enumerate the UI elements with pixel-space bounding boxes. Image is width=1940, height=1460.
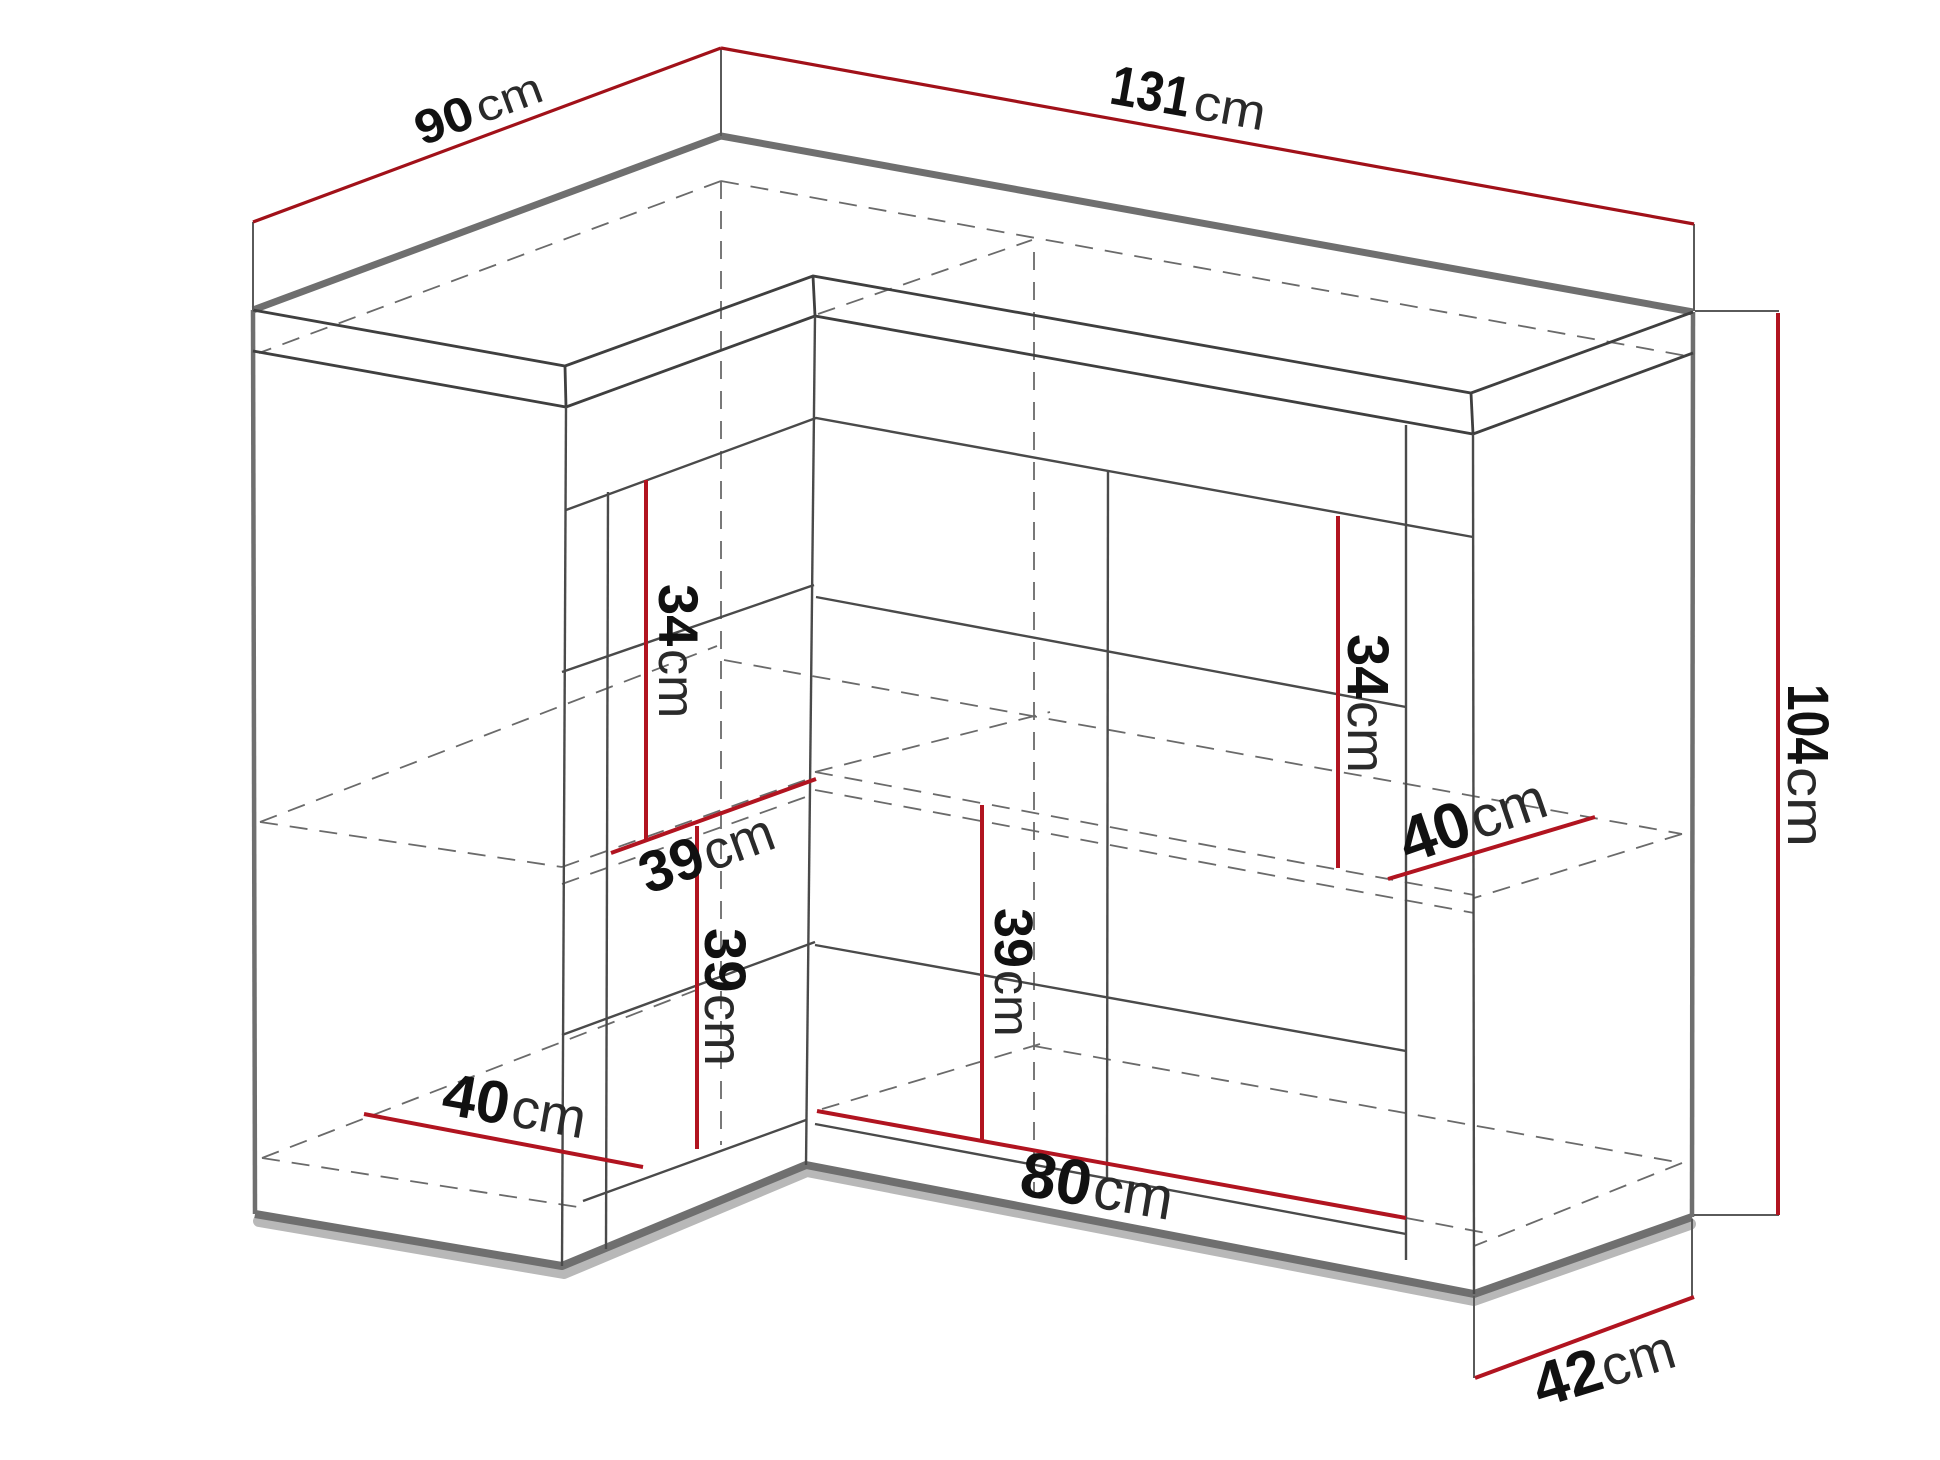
svg-text:cm: cm [1089,1154,1179,1233]
svg-text:cm: cm [647,649,705,718]
svg-text:cm: cm [507,1075,591,1150]
svg-text:34: 34 [647,584,710,646]
svg-text:34: 34 [1335,634,1400,699]
svg-text:cm: cm [1336,701,1396,773]
svg-text:cm: cm [984,970,1040,1037]
svg-text:80: 80 [1015,1137,1097,1220]
svg-text:104: 104 [1775,684,1840,764]
svg-text:40: 40 [438,1060,515,1138]
svg-text:cm: cm [1776,767,1834,847]
svg-text:cm: cm [693,994,753,1066]
svg-text:39: 39 [983,908,1043,968]
svg-text:39: 39 [692,928,757,993]
